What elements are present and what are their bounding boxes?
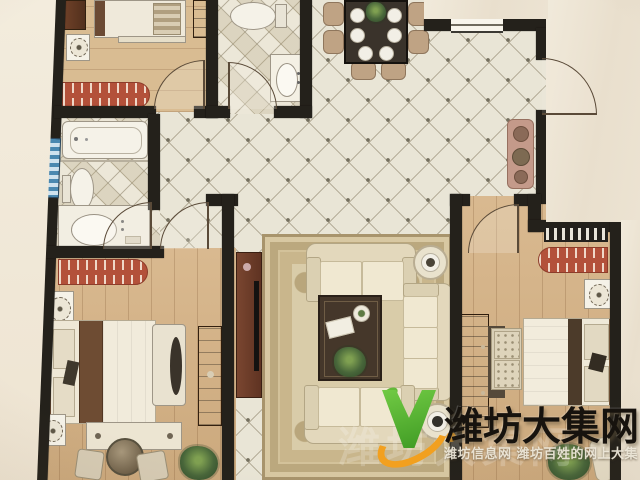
basin-icon [276,63,298,97]
sofa-back [306,243,416,263]
bath-divider-line [60,160,150,162]
tufted-foot-bench [491,328,522,390]
sofa-cushion [403,327,438,359]
pot-icon [514,170,528,184]
decor-dot [207,371,214,378]
bed-lower-left [40,320,156,424]
dresser-gap [541,258,605,263]
radiator-window-right [544,226,608,242]
armchair-foot [152,324,186,406]
stud-dot [95,433,101,439]
pot-icon [512,148,530,166]
floor-plan-photo: 潍坊大集网 潍坊大集网 潍坊信息网 潍坊百姓的网上大集 [0,0,640,480]
bed-throw [568,319,582,405]
nightstand-right [584,279,612,309]
leisure-chair [74,448,105,480]
wall-bath2-right [300,0,312,118]
tv-cabinet [236,252,262,398]
striped-dresser-lower-left [58,259,148,285]
decor-dot [243,263,251,271]
place-setting [350,28,365,43]
window-top [451,17,503,33]
duvet [524,319,568,405]
bathtub [62,121,148,159]
toilet-bowl [230,2,276,30]
dining-chair [323,2,344,26]
dining-table [344,0,408,64]
dining-chair [323,30,344,54]
bathtub-inner [70,127,142,154]
wall-bed1-right [206,0,218,118]
bed-right [523,318,619,406]
nightstand-lamp-upper [66,34,90,61]
window-mid-line [451,24,503,26]
table-plant-icon [334,347,366,377]
sofa-cushion [403,296,438,328]
place-setting [350,8,365,23]
lamp-icon [589,284,609,306]
place-setting [387,28,402,43]
paper-margin-top-sliver [424,0,548,19]
bathtub-drain-icon [74,137,78,141]
lamp-icon [70,38,88,57]
entry-console-table [507,119,534,189]
sofa-arm [304,385,319,430]
toilet-top [230,1,288,31]
fruit-plate-icon [353,305,370,322]
wall-bath2-bottom-left [206,106,230,118]
striped-bench-upper [62,82,150,108]
bed-frame-edge [95,1,105,36]
wall-bed1-bottom [54,106,156,118]
striped-dresser-right [538,247,608,273]
toilet-bowl [70,168,94,210]
wall-bed2-right [222,194,234,480]
chair-back-shadow [170,337,182,395]
bench-cushion [494,331,520,359]
place-setting [387,8,402,23]
striped-pillow [153,3,181,35]
duvet [103,321,155,423]
tv-icon [254,281,259,371]
watermark-sub-text: 潍坊信息网 潍坊百姓的网上大集 [444,443,638,462]
side-table-top [413,245,448,280]
sofa-arm [403,283,439,297]
bathtub-faucet-icon [85,138,88,141]
handle-dot [481,391,485,395]
wall-top-left-of-window [424,19,451,31]
place-setting [379,46,394,61]
stud-dot [167,433,173,439]
plant-lower-left [180,446,218,480]
flower-icon [426,258,435,267]
dresser-gap [61,270,145,275]
coffee-table [318,295,382,381]
handle-dot [481,345,485,349]
bed-upper-left [94,0,186,38]
centerpiece-plant-icon [366,2,386,22]
place-setting [358,46,373,61]
bedroom-tv-cabinet [198,326,222,426]
pot-icon [513,126,529,142]
dining-chair [408,30,429,54]
leisure-chair [136,450,170,480]
bench-cushion [494,360,520,388]
bedside-cabinet [64,0,86,30]
wall-bath-right [148,114,160,210]
bench-gap [65,93,147,98]
wall-bath2-bottom-right [274,106,312,118]
wardrobe-upper-left [193,0,207,38]
bed-runner [79,321,103,423]
toilet-tank [275,4,287,28]
bed-end-platform [118,36,186,43]
